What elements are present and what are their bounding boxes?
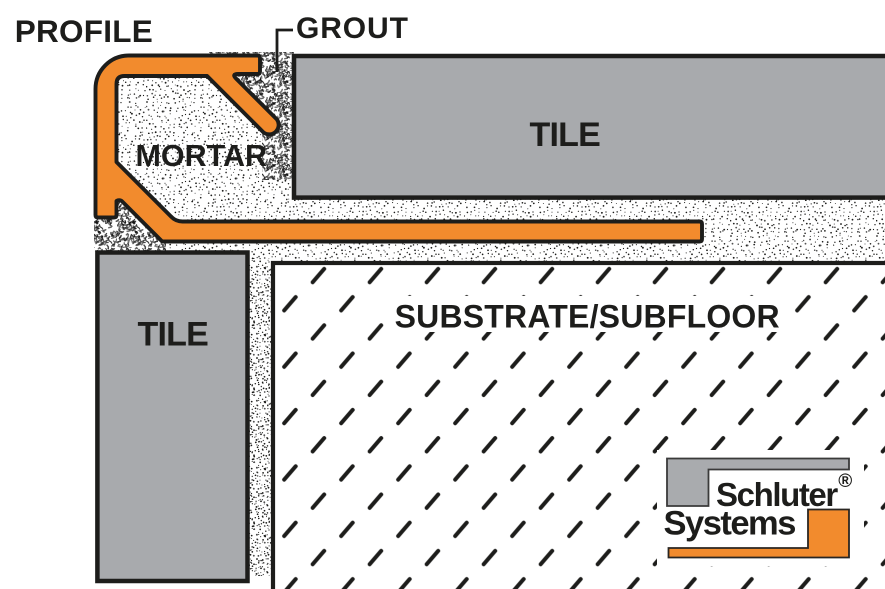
svg-text:SUBSTRATE/SUBFLOOR: SUBSTRATE/SUBFLOOR [395, 298, 780, 334]
svg-text:TILE: TILE [138, 316, 209, 354]
svg-text:TILE: TILE [530, 116, 601, 154]
svg-text:GROUT: GROUT [296, 12, 409, 45]
svg-text:Systems: Systems [664, 505, 796, 543]
svg-text:®: ® [838, 471, 852, 492]
svg-text:PROFILE: PROFILE [15, 13, 153, 49]
svg-text:MORTAR: MORTAR [136, 139, 268, 173]
